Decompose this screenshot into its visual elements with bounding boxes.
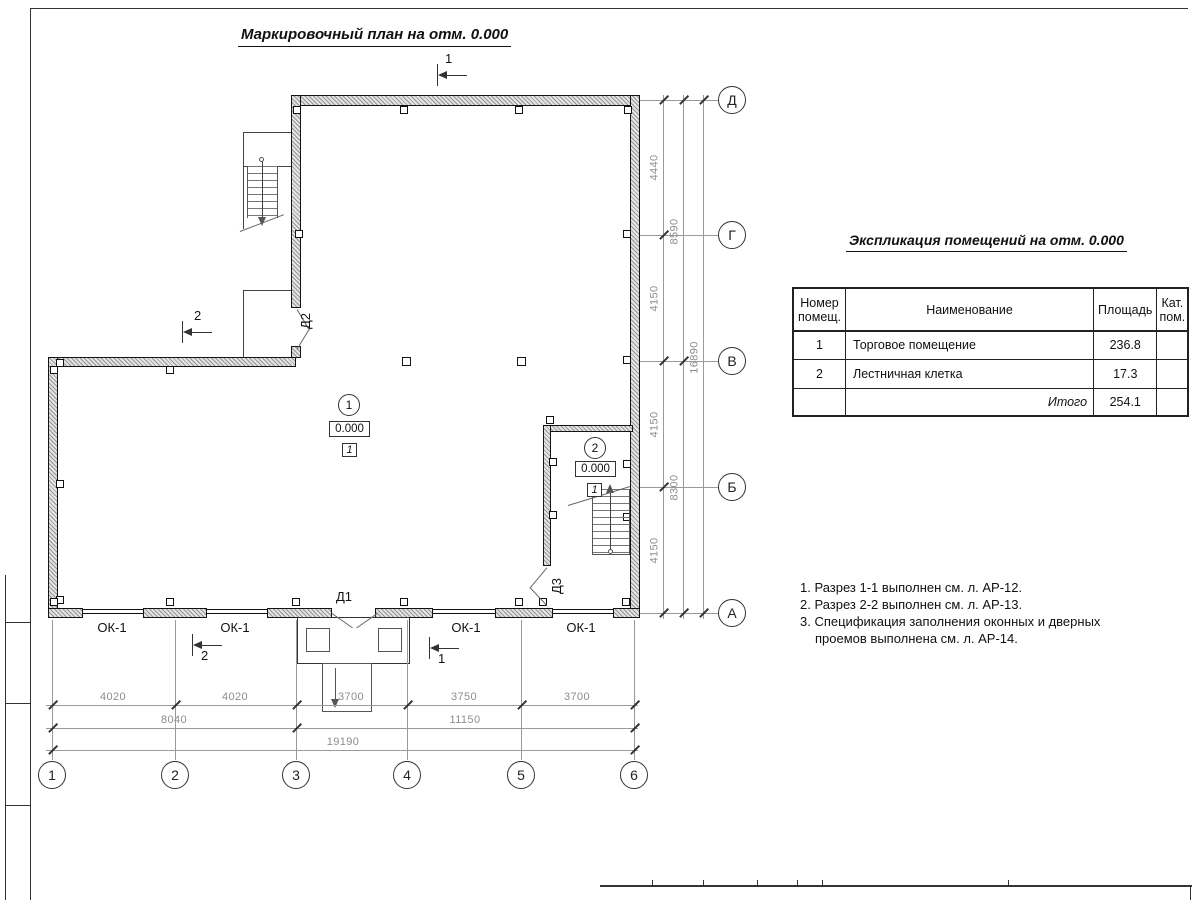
column-marker — [549, 511, 557, 519]
dim-value: 11150 — [435, 714, 495, 727]
table-row: 1 Торговое помещение 236.8 — [793, 331, 1188, 359]
cell-empty — [793, 388, 846, 416]
free-column — [517, 357, 526, 366]
column-marker — [50, 598, 58, 606]
header-area: Площадь — [1094, 288, 1157, 331]
section-mark-1-bottom-label: 1 — [438, 651, 445, 666]
ext-stair-start-circle — [259, 157, 264, 162]
column-marker — [622, 598, 630, 606]
dim-value: 4020 — [83, 691, 143, 704]
column-marker — [549, 458, 557, 466]
dimension-line — [46, 728, 638, 729]
axis-bubble-a: А — [718, 599, 746, 627]
cell-room-area: 17.3 — [1094, 359, 1157, 388]
table-header-row: Номер помещ. Наименование Площадь Кат. п… — [793, 288, 1188, 331]
dim-value: 4440 — [649, 146, 662, 190]
dim-value: 3700 — [321, 691, 381, 704]
section-mark-2-bottom-label: 2 — [201, 648, 208, 663]
frame-margin-divider — [5, 805, 30, 806]
column-marker — [292, 598, 300, 606]
cell-total-label: Итого — [846, 388, 1094, 416]
extension-line — [634, 620, 635, 760]
wall-top — [291, 95, 640, 106]
dimension-line — [683, 95, 684, 619]
wall-bottom-pier — [143, 608, 207, 618]
window-label-ok1: ОК-1 — [436, 620, 496, 635]
dim-value: 8300 — [669, 466, 682, 510]
titleblock-tick — [652, 880, 653, 885]
axis-bubble-3: 3 — [282, 761, 310, 789]
door-label-d1: Д1 — [336, 589, 352, 604]
note-item: 2. Разрез 2-2 выполнен см. л. АР-13. — [800, 596, 1135, 613]
explication-table: Номер помещ. Наименование Площадь Кат. п… — [792, 287, 1189, 417]
column-marker — [293, 106, 301, 114]
cell-room-area: 236.8 — [1094, 331, 1157, 359]
wall-bottom-pier — [495, 608, 553, 618]
column-marker — [295, 230, 303, 238]
axis-bubble-v: В — [718, 347, 746, 375]
ext-stair-outline — [243, 132, 244, 229]
extension-line — [640, 613, 718, 614]
dim-value: 4020 — [205, 691, 265, 704]
dim-value: 3750 — [434, 691, 494, 704]
room-2-floor-type: 1 — [587, 483, 602, 497]
plan-title: Маркировочный план на отм. 0.000 — [238, 26, 511, 47]
frame-margin-line — [5, 575, 6, 900]
dim-value: 8040 — [144, 714, 204, 727]
explication-title: Экспликация помещений на отм. 0.000 — [846, 232, 1127, 252]
note-item: 3. Спецификация заполнения оконных и две… — [800, 613, 1135, 647]
int-stair-treads — [592, 489, 630, 555]
axis-bubble-d: Д — [718, 86, 746, 114]
window-label-ok1: ОК-1 — [205, 620, 265, 635]
axis-bubble-5: 5 — [507, 761, 535, 789]
window-ok1 — [207, 609, 267, 614]
dim-value: 8590 — [669, 210, 682, 254]
room-1-floor-type: 1 — [342, 443, 357, 457]
titleblock-tick — [703, 880, 704, 885]
titleblock-tick — [757, 880, 758, 885]
dim-value: 3700 — [547, 691, 607, 704]
section-mark-2-left-arrow — [183, 328, 192, 336]
window-label-ok1: ОК-1 — [82, 620, 142, 635]
wall-right — [630, 95, 640, 618]
column-marker — [624, 106, 632, 114]
dim-value: 4150 — [649, 403, 662, 447]
wall-stair-vertical — [543, 425, 551, 566]
dimension-line — [663, 95, 664, 619]
extension-line — [640, 361, 718, 362]
axis-bubble-4: 4 — [393, 761, 421, 789]
frame-margin-divider — [5, 622, 30, 623]
window-ok1 — [433, 609, 495, 614]
window-ok1 — [553, 609, 613, 614]
table-total-row: Итого 254.1 — [793, 388, 1188, 416]
extension-line — [52, 620, 53, 760]
dim-value: 19190 — [313, 736, 373, 749]
cell-room-number: 1 — [793, 331, 846, 359]
column-marker — [515, 598, 523, 606]
int-stair-centerline — [610, 490, 611, 552]
header-name: Наименование — [846, 288, 1094, 331]
window-ok1 — [83, 609, 143, 614]
axis-bubble-1: 1 — [38, 761, 66, 789]
ext-stair-outline — [243, 132, 291, 133]
extension-line — [296, 620, 297, 760]
room-2-elevation: 0.000 — [575, 461, 616, 477]
cell-room-name: Торговое помещение — [846, 331, 1094, 359]
frame-top-line — [30, 8, 1188, 9]
column-marker — [166, 598, 174, 606]
section-mark-1-top-label: 1 — [445, 51, 452, 66]
wall-stair-horizontal — [543, 425, 633, 432]
titleblock-tick — [1008, 880, 1009, 885]
room-1-elevation: 0.000 — [329, 421, 370, 437]
header-category: Кат. пом. — [1157, 288, 1188, 331]
column-marker — [515, 106, 523, 114]
cell-room-number: 2 — [793, 359, 846, 388]
door-label-d3: Д3 — [549, 569, 563, 603]
ext-stair-centerline — [262, 161, 263, 219]
extension-line — [407, 620, 408, 760]
room-1-number: 1 — [338, 394, 360, 416]
frame-left-line — [30, 8, 31, 900]
dim-value: 16890 — [689, 336, 702, 380]
axis-bubble-6: 6 — [620, 761, 648, 789]
ext-stair-lower-outline — [243, 290, 291, 291]
notes-block: 1. Разрез 1-1 выполнен см. л. АР-12. 2. … — [800, 579, 1135, 647]
window-label-ok1: ОК-1 — [551, 620, 611, 635]
titleblock-tick — [822, 880, 823, 885]
dimension-line — [46, 705, 638, 706]
header-room-number: Номер помещ. — [793, 288, 846, 331]
column-marker — [56, 480, 64, 488]
porch-column — [306, 628, 330, 652]
section-mark-2-left-label: 2 — [194, 308, 201, 323]
dim-value: 4150 — [649, 277, 662, 321]
room-2-number: 2 — [584, 437, 606, 459]
note-item: 1. Разрез 1-1 выполнен см. л. АР-12. — [800, 579, 1135, 596]
porch-column — [378, 628, 402, 652]
column-marker — [546, 416, 554, 424]
int-stair-start-circle — [608, 549, 613, 554]
cell-room-name: Лестничная клетка — [846, 359, 1094, 388]
frame-right-stub — [1190, 885, 1191, 900]
column-marker — [166, 366, 174, 374]
table-row: 2 Лестничная клетка 17.3 — [793, 359, 1188, 388]
dimension-line — [703, 95, 704, 619]
axis-bubble-b: Б — [718, 473, 746, 501]
titleblock-top-line — [600, 885, 1192, 887]
wall-bottom-pier — [48, 608, 83, 618]
ext-stair-lower-outline — [243, 290, 244, 357]
dim-value: 4150 — [649, 529, 662, 573]
extension-line — [175, 620, 176, 760]
axis-bubble-g: Г — [718, 221, 746, 249]
cell-empty — [1157, 388, 1188, 416]
drawing-sheet: { "titles": { "plan": "Маркировочный пла… — [0, 0, 1200, 900]
column-marker — [400, 106, 408, 114]
axis-bubble-2: 2 — [161, 761, 189, 789]
titleblock-tick — [797, 880, 798, 885]
column-marker — [623, 356, 631, 364]
extension-line — [521, 620, 522, 760]
frame-margin-divider — [5, 703, 30, 704]
wall-upper-left — [291, 95, 301, 308]
cell-room-category — [1157, 331, 1188, 359]
door-label-d2: Д2 — [298, 304, 312, 338]
column-marker — [623, 230, 631, 238]
cell-total-area: 254.1 — [1094, 388, 1157, 416]
column-marker — [400, 598, 408, 606]
section-mark-1-top-arrow — [438, 71, 447, 79]
door-d3-leaf — [529, 567, 547, 588]
column-marker — [50, 366, 58, 374]
free-column — [402, 357, 411, 366]
column-marker — [623, 460, 631, 468]
wall-bottom-pier — [613, 608, 640, 618]
extension-line — [640, 100, 718, 101]
cell-room-category — [1157, 359, 1188, 388]
dimension-line — [46, 750, 638, 751]
